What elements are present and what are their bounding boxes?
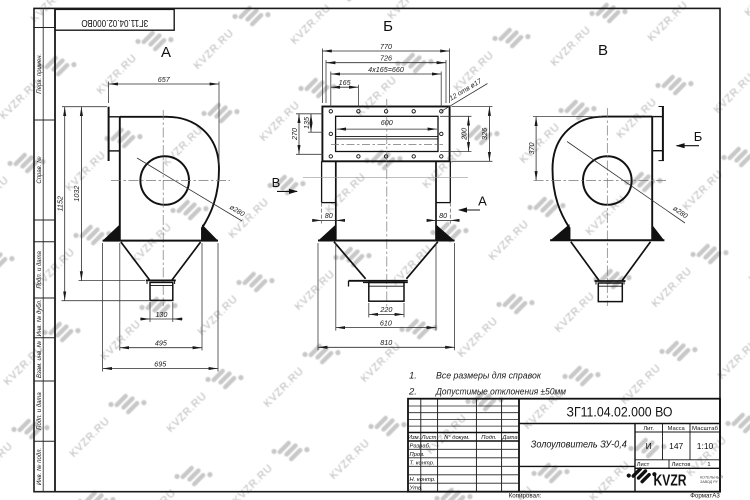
svg-text:Инв. № дубл.: Инв. № дубл. xyxy=(36,299,43,336)
svg-text:Взам. инв. №: Взам. инв. № xyxy=(36,340,43,378)
svg-text:Пров.: Пров. xyxy=(410,452,425,458)
svg-text:Золоуловитель ЗУ-0,4: Золоуловитель ЗУ-0,4 xyxy=(531,439,627,451)
svg-text:ЗГ11.04.02.000ВО: ЗГ11.04.02.000ВО xyxy=(81,17,148,29)
svg-text:495: 495 xyxy=(155,339,168,348)
svg-text:Н. контр.: Н. контр. xyxy=(410,477,436,483)
svg-text:Б: Б xyxy=(694,129,703,144)
svg-text:В: В xyxy=(272,175,281,190)
svg-text:Копировал:: Копировал: xyxy=(509,493,542,500)
svg-text:N° докум.: N° докум. xyxy=(444,435,470,441)
svg-text:135: 135 xyxy=(302,116,311,129)
svg-text:Масса: Масса xyxy=(668,426,686,432)
svg-text:В: В xyxy=(598,42,608,59)
svg-text:А: А xyxy=(478,194,487,209)
svg-text:2.: 2. xyxy=(408,387,417,398)
svg-text:Разраб.: Разраб. xyxy=(410,443,431,449)
svg-text:1.: 1. xyxy=(409,371,417,382)
svg-text:200: 200 xyxy=(459,128,468,141)
svg-text:270: 270 xyxy=(290,128,299,141)
svg-text:657: 657 xyxy=(158,75,171,84)
svg-text:Т. контр.: Т. контр. xyxy=(410,460,435,466)
svg-text:165: 165 xyxy=(339,78,352,87)
svg-text:Подп. и дата: Подп. и дата xyxy=(37,392,43,430)
svg-text:695: 695 xyxy=(154,359,167,368)
svg-text:Лист: Лист xyxy=(637,462,650,468)
svg-text:Все размеры для справок: Все размеры для справок xyxy=(436,371,541,382)
svg-text:Справ. №: Справ. № xyxy=(36,156,43,184)
svg-text:80: 80 xyxy=(439,211,447,220)
svg-text:220: 220 xyxy=(379,305,392,314)
svg-text:80: 80 xyxy=(325,211,333,220)
svg-text:КОТЕЛЬНЫЙ: КОТЕЛЬНЫЙ xyxy=(700,476,723,480)
svg-text:326: 326 xyxy=(480,128,489,140)
svg-text:Подп. и дата: Подп. и дата xyxy=(37,250,43,288)
svg-text:А: А xyxy=(161,44,171,61)
svg-text:Изм.: Изм. xyxy=(408,435,420,441)
svg-text:Лит.: Лит. xyxy=(643,426,654,432)
svg-text:1: 1 xyxy=(707,462,710,468)
svg-text:KVZR: KVZR xyxy=(654,473,687,490)
svg-text:4x165=660: 4x165=660 xyxy=(368,65,404,74)
svg-text:1152: 1152 xyxy=(56,196,65,211)
svg-text:810: 810 xyxy=(380,338,392,347)
svg-text:И: И xyxy=(646,441,652,451)
svg-text:130: 130 xyxy=(155,310,167,319)
svg-text:Подп.: Подп. xyxy=(481,435,496,441)
svg-text:Инв. № подл.: Инв. № подл. xyxy=(36,448,43,485)
svg-text:610: 610 xyxy=(380,318,392,327)
svg-text:Допустимые отклонения ±50мм: Допустимые отклонения ±50мм xyxy=(435,387,566,398)
svg-text:Перв. примен.: Перв. примен. xyxy=(37,54,43,94)
svg-text:147: 147 xyxy=(669,441,683,451)
svg-text:Листов: Листов xyxy=(672,462,691,468)
svg-text:ЗАВОД РУ: ЗАВОД РУ xyxy=(700,480,718,484)
svg-text:370: 370 xyxy=(527,143,536,155)
svg-text:Масштаб: Масштаб xyxy=(692,426,719,432)
svg-text:726: 726 xyxy=(380,54,392,63)
svg-text:Дата: Дата xyxy=(501,435,518,441)
svg-text:ЗГ11.04.02.000 ВО: ЗГ11.04.02.000 ВО xyxy=(567,405,673,420)
svg-text:Утв.: Утв. xyxy=(409,486,423,492)
svg-text:Лист: Лист xyxy=(421,435,437,441)
svg-text:Б: Б xyxy=(383,18,393,35)
svg-text:1:10: 1:10 xyxy=(697,441,714,451)
svg-text:770: 770 xyxy=(380,42,392,51)
svg-text:ФорматА3: ФорматА3 xyxy=(690,493,720,500)
svg-text:1032: 1032 xyxy=(72,186,81,202)
